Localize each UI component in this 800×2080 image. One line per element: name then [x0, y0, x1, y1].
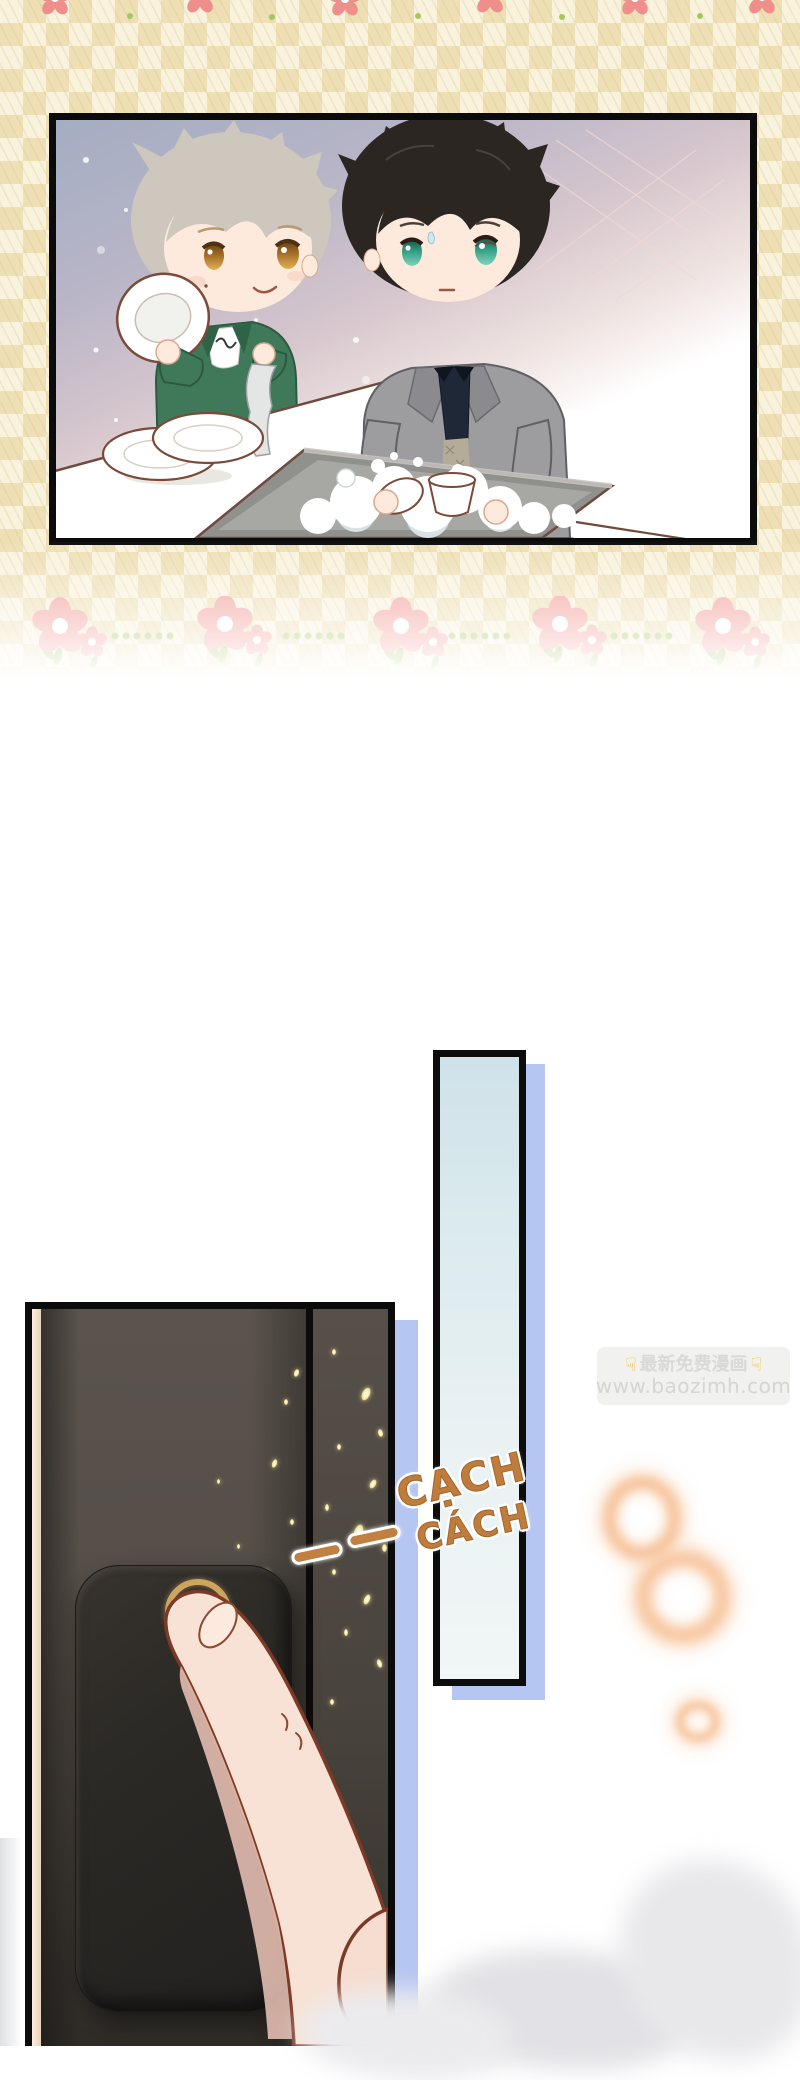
- glow-ring: [603, 1476, 681, 1560]
- glow-ring: [676, 1701, 720, 1742]
- illustration-scene: [56, 120, 750, 538]
- sweat-drop: [428, 232, 435, 244]
- foliage-shadow: [300, 1990, 510, 2080]
- edge-shading: [0, 1838, 22, 2046]
- pressing-finger: [32, 1309, 388, 2046]
- watermark-title: 最新免费漫画: [640, 1355, 748, 1375]
- top-flower-border: [0, 0, 800, 20]
- illustration-panel: [49, 113, 757, 545]
- pointing-down-icon: ☟: [625, 1355, 637, 1376]
- pointing-down-icon: ☟: [751, 1355, 763, 1376]
- comic-page: { "sfx": { "word1": "CẠCH", "word2": "CÁ…: [0, 0, 800, 2046]
- plaid-fade: [0, 540, 800, 710]
- watermark-url: www.baozimh.com: [596, 1375, 792, 1397]
- glow-ring: [636, 1551, 730, 1643]
- watermark-title-row: ☟ 最新免费漫画 ☟: [625, 1355, 762, 1376]
- door-panel: [25, 1302, 395, 2046]
- site-watermark: ☟ 最新免费漫画 ☟ www.baozimh.com: [597, 1347, 790, 1405]
- vertical-panel: [433, 1050, 526, 1686]
